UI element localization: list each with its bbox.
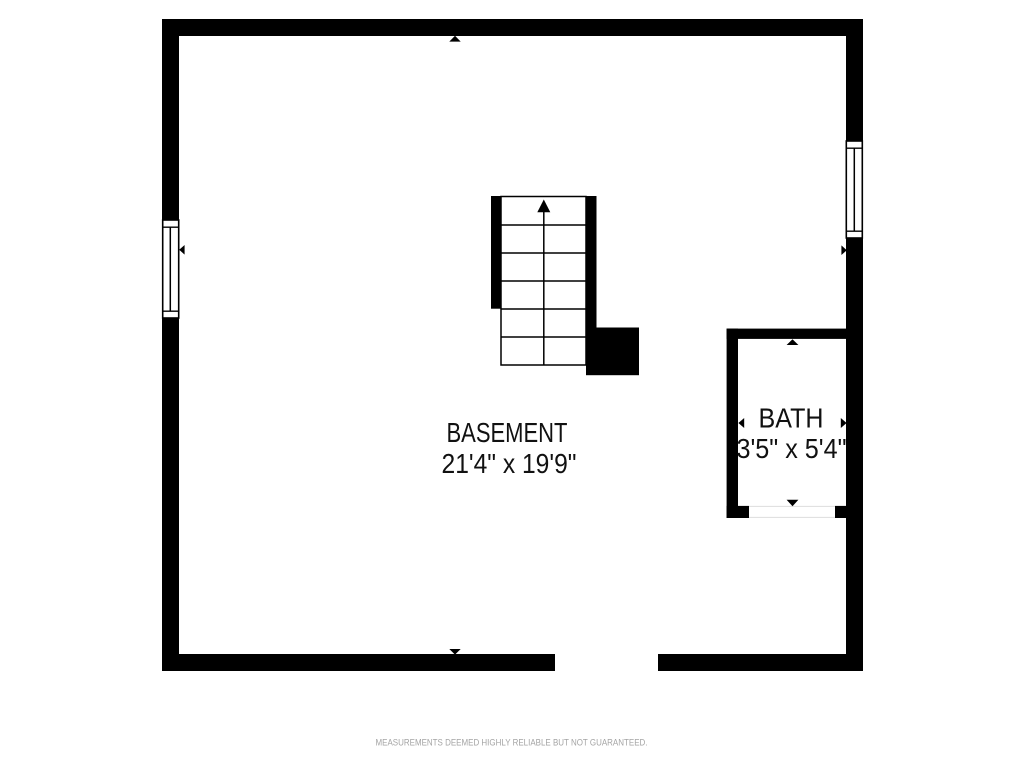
svg-text:3'5" x 5'4": 3'5" x 5'4" <box>737 433 847 464</box>
svg-text:BASEMENT: BASEMENT <box>447 417 568 448</box>
svg-text:MEASUREMENTS DEEMED HIGHLY REL: MEASUREMENTS DEEMED HIGHLY RELIABLE BUT … <box>376 738 648 749</box>
svg-text:21'4" x 19'9": 21'4" x 19'9" <box>442 448 577 479</box>
svg-text:BATH: BATH <box>759 403 824 434</box>
